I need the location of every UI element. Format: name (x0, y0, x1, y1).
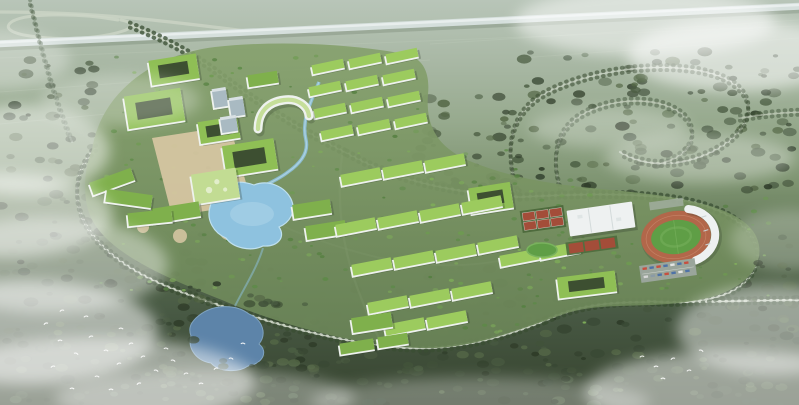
rendering-canvas (0, 0, 799, 405)
sports-oval (527, 243, 557, 257)
campus-aerial-rendering (0, 0, 799, 405)
